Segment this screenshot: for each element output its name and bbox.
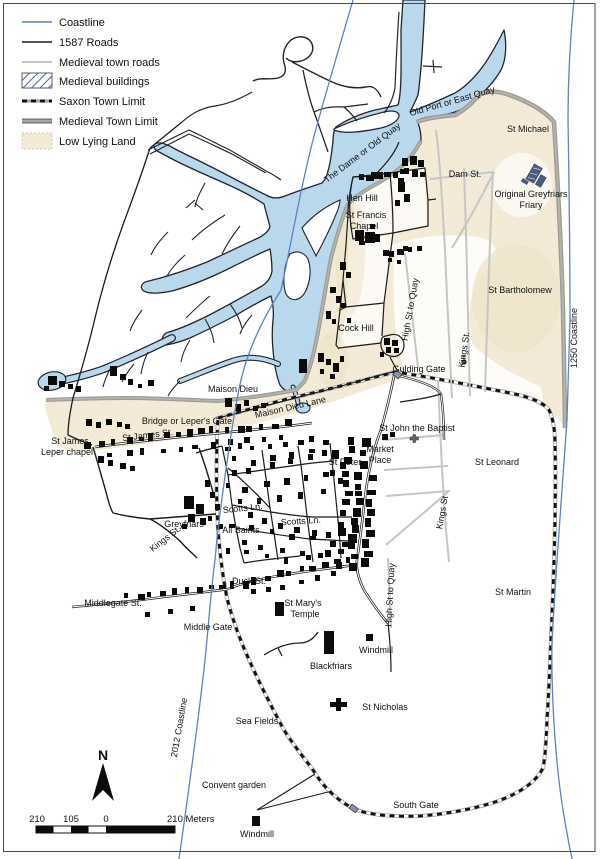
svg-text:Bridge or Leper's Gate: Bridge or Leper's Gate <box>142 416 232 426</box>
svg-text:Dam St.: Dam St. <box>449 169 482 179</box>
svg-text:210 Meters: 210 Meters <box>167 814 215 825</box>
svg-text:1250 Coastline: 1250 Coastline <box>569 308 579 368</box>
svg-text:Gulding Gate: Gulding Gate <box>392 364 445 374</box>
svg-text:St James: St James <box>51 436 89 446</box>
svg-text:Chapel: Chapel <box>350 221 379 231</box>
svg-text:Duck St.: Duck St. <box>232 576 266 586</box>
svg-text:Low Lying Land: Low Lying Land <box>59 136 136 148</box>
svg-text:St Martin: St Martin <box>495 587 531 597</box>
svg-text:Convent garden: Convent garden <box>202 780 266 790</box>
svg-text:All Saints: All Saints <box>222 525 260 535</box>
svg-text:Saxon Town Limit: Saxon Town Limit <box>59 96 145 108</box>
svg-text:Coastline: Coastline <box>59 17 105 29</box>
svg-text:Leper chapel: Leper chapel <box>41 447 93 457</box>
svg-text:Middle Gate: Middle Gate <box>184 622 233 632</box>
svg-text:Place: Place <box>369 455 392 465</box>
svg-text:St John the Baptist: St John the Baptist <box>379 423 455 433</box>
svg-text:St Michael: St Michael <box>507 124 549 134</box>
svg-text:Sea Fields: Sea Fields <box>236 716 279 726</box>
svg-text:St Mary's: St Mary's <box>284 598 322 608</box>
svg-text:N: N <box>98 747 108 763</box>
svg-text:Maison Dieu: Maison Dieu <box>208 384 258 394</box>
svg-text:St Leonard: St Leonard <box>475 457 519 467</box>
svg-text:Cock Hill: Cock Hill <box>338 323 374 333</box>
svg-text:South Gate: South Gate <box>393 800 439 810</box>
svg-text:Medieval Town Limit: Medieval Town Limit <box>59 116 158 128</box>
svg-text:0: 0 <box>103 814 108 825</box>
svg-text:St Francis: St Francis <box>346 210 387 220</box>
svg-text:210: 210 <box>29 814 45 825</box>
svg-text:St Bartholomew: St Bartholomew <box>488 285 552 295</box>
svg-text:Greyfriars: Greyfriars <box>164 519 204 529</box>
svg-text:Friary: Friary <box>520 200 543 210</box>
svg-text:St Nicholas: St Nicholas <box>362 702 408 712</box>
svg-text:Original Greyfriars: Original Greyfriars <box>494 189 568 199</box>
svg-text:Windmill: Windmill <box>240 829 274 839</box>
svg-text:Windmill: Windmill <box>359 645 393 655</box>
svg-text:105: 105 <box>63 814 79 825</box>
svg-text:Market: Market <box>366 444 394 454</box>
svg-text:Blackfriars: Blackfriars <box>310 661 353 671</box>
svg-text:Middlegate St.: Middlegate St. <box>84 598 142 608</box>
svg-text:Medieval buildings: Medieval buildings <box>59 76 150 88</box>
svg-text:St Peter: St Peter <box>329 457 362 467</box>
svg-text:Medieval town roads: Medieval town roads <box>59 57 160 69</box>
svg-text:Hen Hill: Hen Hill <box>346 193 378 203</box>
svg-text:1587 Roads: 1587 Roads <box>59 37 119 49</box>
svg-text:Temple: Temple <box>290 609 319 619</box>
